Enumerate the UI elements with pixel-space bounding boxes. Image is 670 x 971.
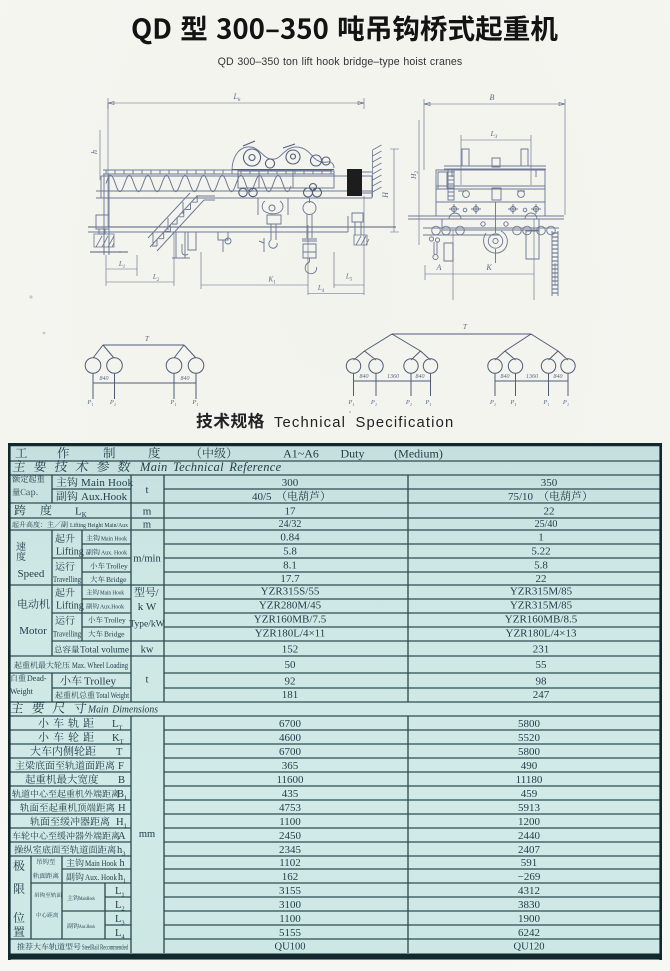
svg-text:40/5: 40/5 [252, 491, 272, 503]
svg-text:Main Hook: Main Hook [81, 477, 134, 489]
svg-text:2440: 2440 [518, 830, 541, 842]
svg-text:h: h [120, 858, 125, 869]
svg-text:F: F [118, 761, 124, 772]
svg-text:181: 181 [282, 689, 299, 701]
svg-text:t: t [145, 674, 148, 686]
svg-text:YZR160MB/8.5: YZR160MB/8.5 [505, 614, 578, 626]
svg-text:5.22: 5.22 [531, 546, 550, 558]
svg-text:6700: 6700 [279, 746, 302, 758]
svg-text:840: 840 [554, 373, 563, 380]
svg-text:t: t [145, 484, 148, 496]
svg-text:5913: 5913 [518, 802, 541, 814]
svg-text:Motor: Motor [19, 625, 47, 637]
svg-text:Trolley: Trolley [106, 562, 128, 571]
svg-text:8.1: 8.1 [283, 560, 297, 572]
svg-text:(Medium): (Medium) [394, 447, 443, 461]
svg-text:Max. Wheel Loading: Max. Wheel Loading [72, 661, 128, 670]
svg-text:YZR160MB/7.5: YZR160MB/7.5 [254, 614, 327, 626]
svg-text:55: 55 [536, 659, 548, 671]
svg-text:QU120: QU120 [514, 942, 545, 953]
svg-text:kw: kw [141, 645, 154, 656]
svg-text:A: A [436, 263, 442, 272]
svg-text:591: 591 [521, 857, 538, 869]
svg-text:6700: 6700 [279, 718, 302, 730]
svg-text:Lifting Height Main/Aux: Lifting Height Main/Aux [70, 522, 128, 529]
svg-text:1360: 1360 [387, 374, 399, 380]
svg-text:Aux.Hook: Aux.Hook [79, 924, 95, 930]
svg-text:840: 840 [360, 373, 369, 380]
svg-text:840: 840 [501, 373, 510, 380]
svg-text:Travelling: Travelling [53, 629, 82, 639]
svg-text:Trolley: Trolley [104, 616, 126, 625]
svg-text:QD 300–350 ton lift hook bridg: QD 300–350 ton lift hook bridge–type hoi… [218, 56, 463, 68]
svg-text:mm: mm [139, 829, 155, 840]
svg-text:YZR315M/85: YZR315M/85 [510, 600, 573, 612]
svg-text:Main Hook: Main Hook [85, 858, 118, 868]
svg-text:Total Weight: Total Weight [96, 691, 130, 700]
svg-text:1900: 1900 [518, 913, 541, 925]
svg-text:Type/kW: Type/kW [129, 620, 164, 630]
svg-text:Bridge: Bridge [106, 575, 127, 584]
svg-text:YZR315M/85: YZR315M/85 [510, 586, 573, 598]
svg-text:Main Dimensions: Main Dimensions [87, 704, 158, 716]
svg-text:Main Hook: Main Hook [101, 536, 128, 543]
svg-text:A: A [118, 831, 126, 842]
svg-text:YZR180L/4×13: YZR180L/4×13 [506, 628, 577, 640]
svg-text:K: K [485, 263, 492, 272]
svg-text:3830: 3830 [518, 899, 541, 911]
svg-text:17.7: 17.7 [280, 573, 300, 585]
svg-text:A1~A6: A1~A6 [283, 447, 319, 461]
svg-text:Travelling: Travelling [53, 574, 82, 584]
svg-text:490: 490 [521, 760, 538, 772]
svg-text:YZR315S/55: YZR315S/55 [261, 586, 320, 598]
svg-text:459: 459 [521, 788, 538, 800]
svg-text:300: 300 [282, 477, 299, 489]
svg-text:Aux. Hook: Aux. Hook [85, 872, 118, 882]
svg-text:5155: 5155 [279, 927, 302, 939]
svg-text:m: m [143, 520, 151, 531]
svg-text:YZR280M/45: YZR280M/45 [259, 600, 322, 612]
svg-text:2407: 2407 [518, 844, 541, 856]
svg-text:5.8: 5.8 [283, 546, 297, 558]
svg-text:2450: 2450 [279, 830, 302, 842]
svg-text:QU100: QU100 [275, 942, 306, 953]
svg-text:435: 435 [282, 788, 299, 800]
svg-text:Duty: Duty [341, 447, 365, 461]
svg-text:11180: 11180 [516, 774, 543, 786]
svg-text:50: 50 [285, 659, 297, 671]
svg-text:98: 98 [536, 676, 548, 688]
svg-text:Technical Specification: Technical Specification [274, 415, 454, 431]
svg-text:25/40: 25/40 [535, 519, 558, 530]
svg-text:Speed: Speed [18, 568, 45, 580]
svg-text:1100: 1100 [279, 913, 301, 925]
svg-text:840: 840 [416, 373, 425, 380]
svg-text:Lifting: Lifting [56, 547, 84, 558]
svg-text:1200: 1200 [518, 816, 541, 828]
svg-text:2345: 2345 [279, 844, 302, 856]
svg-text:MainHook: MainHook [79, 896, 95, 902]
svg-text:Aux.Hook: Aux.Hook [100, 605, 124, 611]
svg-text:3100: 3100 [279, 899, 302, 911]
svg-text:3155: 3155 [279, 885, 302, 897]
svg-text:22: 22 [544, 506, 555, 518]
svg-text:5800: 5800 [518, 718, 541, 730]
svg-text:4753: 4753 [279, 802, 302, 814]
svg-text:H: H [118, 803, 126, 814]
svg-text:Main Technical Reference: Main Technical Reference [139, 460, 282, 474]
svg-text:247: 247 [533, 689, 550, 701]
svg-text:Trolley: Trolley [84, 676, 116, 688]
svg-text:h: h [90, 150, 99, 154]
svg-text:−269: −269 [518, 871, 541, 883]
svg-text:350: 350 [541, 477, 558, 489]
svg-text:B: B [490, 93, 495, 102]
svg-text:5.8: 5.8 [534, 560, 548, 572]
svg-text:6242: 6242 [518, 927, 540, 939]
svg-text:24/32: 24/32 [279, 519, 302, 530]
svg-text:Lifting: Lifting [56, 601, 84, 612]
svg-text:75/10: 75/10 [508, 491, 534, 503]
svg-text:92: 92 [285, 676, 296, 688]
svg-text:Aux.Hook: Aux.Hook [81, 491, 128, 503]
svg-text:T: T [116, 747, 123, 758]
svg-text:5800: 5800 [518, 746, 541, 758]
svg-text:Main Hook: Main Hook [100, 591, 124, 597]
svg-text:m/min: m/min [133, 554, 161, 565]
svg-text:SteelRail Recommended: SteelRail Recommended [82, 944, 128, 952]
svg-text:162: 162 [282, 871, 299, 883]
svg-text:840: 840 [181, 375, 190, 382]
svg-text:Weight: Weight [10, 687, 34, 696]
svg-text:1: 1 [538, 532, 544, 544]
svg-text:YZR180L/4×11: YZR180L/4×11 [255, 628, 326, 640]
svg-text:17: 17 [285, 506, 297, 518]
svg-text:0.84: 0.84 [280, 532, 300, 544]
svg-text:4600: 4600 [279, 732, 302, 744]
svg-text:4312: 4312 [518, 885, 540, 897]
svg-text:1102: 1102 [279, 857, 301, 869]
svg-text:Total volume: Total volume [80, 646, 129, 656]
svg-text:m: m [143, 506, 152, 518]
svg-text:152: 152 [282, 644, 299, 656]
svg-text:231: 231 [533, 644, 550, 656]
svg-text:840: 840 [100, 375, 109, 382]
svg-text:11600: 11600 [276, 774, 304, 786]
svg-text:365: 365 [282, 760, 299, 772]
svg-text:Bridge: Bridge [104, 630, 125, 639]
svg-text:B: B [118, 775, 125, 786]
svg-text:Dead-: Dead- [27, 674, 47, 683]
svg-text:1100: 1100 [279, 816, 301, 828]
svg-text:1360: 1360 [526, 374, 538, 380]
svg-text:22: 22 [536, 573, 547, 585]
svg-text:5520: 5520 [518, 732, 541, 744]
svg-text:k W: k W [138, 601, 157, 613]
svg-text:Aux. Hook: Aux. Hook [101, 550, 128, 557]
